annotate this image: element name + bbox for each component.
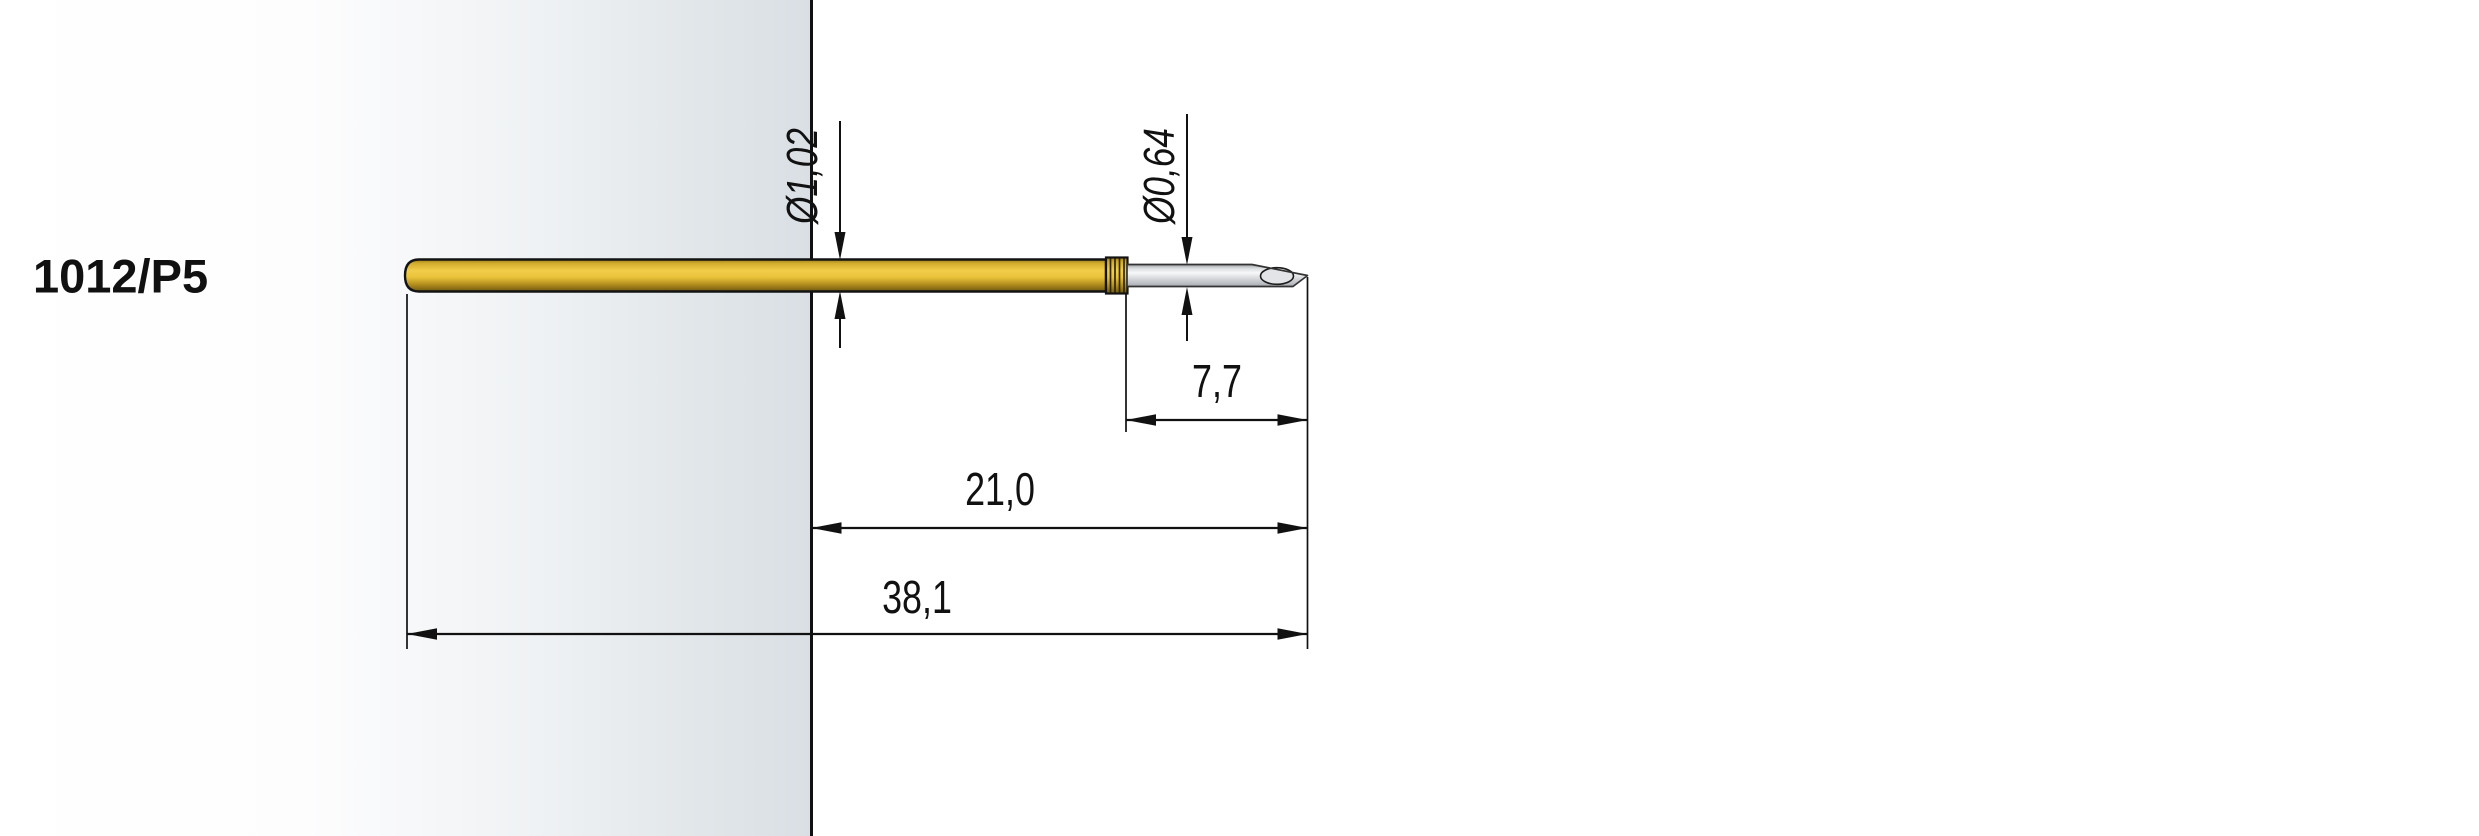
arrow-right-icon xyxy=(1278,414,1308,426)
arrow-up-icon xyxy=(1182,287,1193,315)
probe-shaft xyxy=(405,260,1106,292)
drawing-geometry xyxy=(0,0,2479,836)
technical-drawing: 1012/P5 Ø1,02 Ø0,64 7,7 21,0 38,1 xyxy=(0,0,2479,836)
arrow-left-icon xyxy=(407,628,437,640)
probe xyxy=(405,258,1308,294)
arrow-up-icon xyxy=(835,291,846,319)
arrow-down-icon xyxy=(1182,237,1193,265)
dimension-line-tip-length xyxy=(1126,414,1308,426)
arrow-right-icon xyxy=(1278,522,1308,534)
shaft-diameter-callout xyxy=(835,121,846,348)
arrow-down-icon xyxy=(835,232,846,260)
shaft-diameter-label: Ø1,02 xyxy=(781,128,825,224)
extension-lines xyxy=(407,277,1308,649)
dimension-line-exposed-length xyxy=(812,522,1308,534)
dimension-line-overall-length xyxy=(407,628,1308,640)
exposed-length-label: 21,0 xyxy=(965,466,1035,512)
tip-diameter-label: Ø0,64 xyxy=(1138,128,1182,224)
arrow-left-icon xyxy=(1126,414,1156,426)
overall-length-label: 38,1 xyxy=(882,574,952,620)
arrow-left-icon xyxy=(812,522,842,534)
part-number-label: 1012/P5 xyxy=(33,249,208,304)
tip-length-label: 7,7 xyxy=(1192,358,1242,404)
arrow-right-icon xyxy=(1278,628,1308,640)
